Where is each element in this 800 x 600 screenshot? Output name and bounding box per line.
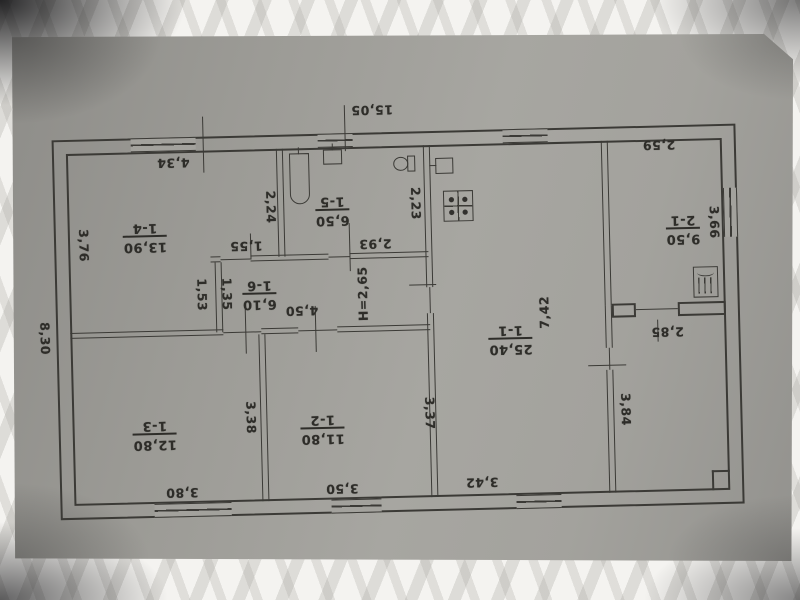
dim-bath-right: 2,23 [409,187,422,220]
kitchen-sink-icon [435,158,453,174]
room-area: 25,40 [489,340,533,356]
room-area: 6,50 [315,211,349,227]
dim-total-width: 15,05 [351,103,393,117]
room-area: 11,80 [301,430,345,446]
dim-room12-height: 3,37 [423,397,436,430]
room-number: 1-2 [310,410,335,426]
bathtub-icon [289,153,310,204]
window-room13 [154,502,231,518]
room-number: 1-6 [246,276,271,292]
dim-room21-width: 2,59 [642,138,675,151]
kitchen-sink-faucet-icon [429,165,436,166]
window-room11 [516,494,561,509]
dim-segment-155: 1,55 [230,239,263,252]
room-label-1-5: 6,50 1-5 [315,192,350,227]
dim-notch-153: 1,53 [195,278,208,311]
dim-room11-height: 7,42 [538,296,551,329]
bathroom-sink-faucet-icon [332,143,333,150]
window-bath [317,133,352,148]
dim-room21-height: 3,66 [707,206,720,239]
dim-corridor-width: 1,35 [220,278,233,311]
wall-room21-bottom-b [678,301,726,316]
window-room12 [331,498,381,513]
veranda-step [712,470,730,490]
fraction-line [666,227,700,229]
furnace-icon [693,266,719,298]
room-number: 1-5 [319,192,344,208]
bathtub-faucet-icon [298,147,299,154]
fraction-line [242,292,276,294]
dim-bath-left: 2,24 [264,190,277,223]
room-area: 13,90 [123,238,167,254]
wall-corridor-bottom-b [261,327,298,334]
ceiling-height-note: H=2,65 [356,266,370,321]
gas-stove-icon [443,190,474,222]
dim-veranda-width: 2,85 [651,325,684,338]
dim-bath-width: 2,93 [359,237,392,250]
window-room14 [131,137,196,153]
room-label-1-1: 25,40 1-1 [488,320,532,355]
dim-room11-width: 3,42 [465,475,498,488]
dim-room13-width: 3,80 [166,486,199,499]
wall-room21-bottom-a [612,303,636,318]
room-number: 2-1 [670,210,695,226]
dim-room14-width: 4,34 [157,156,190,169]
window-kitchen [502,128,547,143]
room-number: 1-3 [142,416,167,432]
fraction-line [315,208,349,210]
room-label-1-4: 13,90 1-4 [123,218,167,253]
room-label-2-1: 9,50 2-1 [665,210,700,245]
dim-corridor-length: 4,50 [285,304,318,317]
floor-plan-photo: 15,05 8,30 4,34 3,76 2,24 2,23 2,93 1,55… [0,0,800,600]
floor-plan-drawing: 15,05 8,30 4,34 3,76 2,24 2,23 2,93 1,55… [35,109,755,526]
room-area: 9,50 [666,230,700,246]
dim-total-height: 8,30 [38,322,51,355]
dim-veranda-height: 3,84 [619,393,632,426]
dim-room13-height: 3,38 [244,401,257,434]
room-label-1-6: 6,10 1-6 [242,276,277,311]
dim-room12-width: 3,50 [326,482,359,495]
window-room21 [723,188,738,237]
room-number: 1-1 [498,321,523,337]
toilet-tank-icon [407,155,415,171]
room-label-1-3: 12,80 1-3 [133,416,177,451]
bathroom-sink-icon [323,149,342,164]
room-number: 1-4 [132,219,157,235]
room-area: 6,10 [242,295,276,311]
room-area: 12,80 [133,436,177,452]
dim-room14-height: 3,76 [76,229,89,262]
room-label-1-2: 11,80 1-2 [300,410,344,445]
